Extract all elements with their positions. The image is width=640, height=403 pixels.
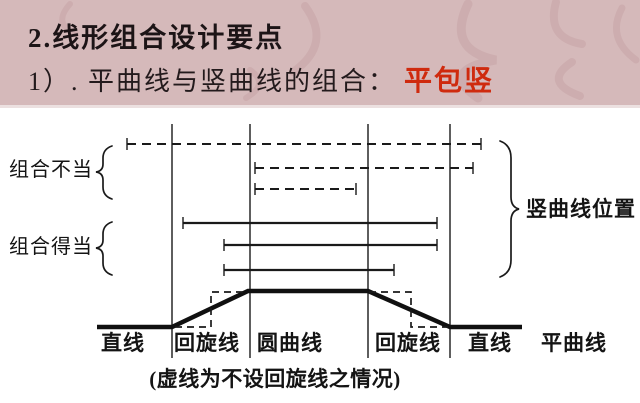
slide: { "slide": { "title": "2.线形组合设计要点", "sub… xyxy=(0,0,640,403)
segment-label-spiral-left: 回旋线 xyxy=(174,332,240,355)
label-proper-combination: 组合得当 xyxy=(9,236,93,258)
proper-brace xyxy=(96,222,112,275)
horizontal-alignment-profile-line xyxy=(97,291,522,327)
improper-brace xyxy=(96,146,112,199)
vertical-curve-brace xyxy=(500,141,519,277)
segment-label-tangent-left: 直线 xyxy=(101,332,145,355)
axis-label-horizontal-curve: 平曲线 xyxy=(541,332,607,355)
segment-label-spiral-right: 回旋线 xyxy=(375,332,441,355)
label-improper-combination: 组合不当 xyxy=(9,159,93,181)
segment-label-tangent-right: 直线 xyxy=(468,332,512,355)
segment-label-circular-curve: 圆曲线 xyxy=(257,332,323,355)
diagram-caption: (虚线为不设回旋线之情况) xyxy=(149,368,401,391)
label-vertical-curve-position: 竖曲线位置 xyxy=(526,198,636,221)
